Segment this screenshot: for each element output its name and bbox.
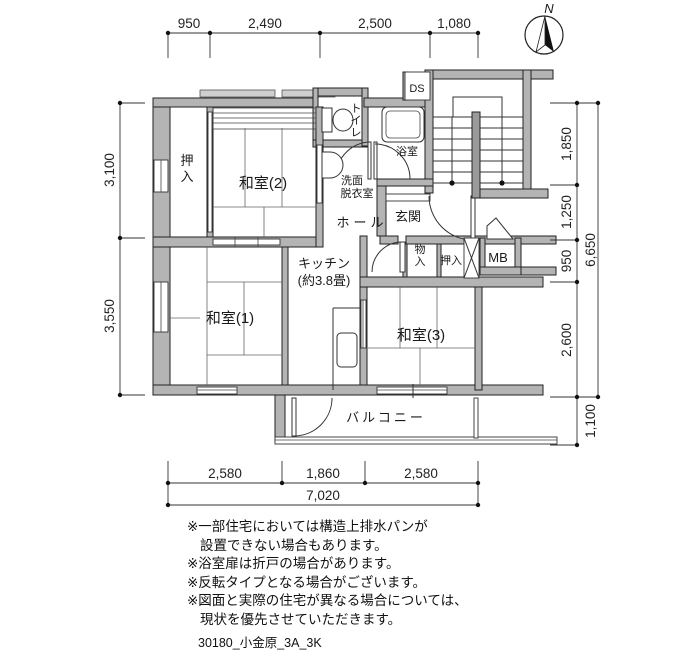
note-line-6: 現状を優先させていただきます。 bbox=[200, 612, 401, 627]
label-genkan: 玄関 bbox=[395, 209, 421, 224]
note-line-2: 設置できない場合もあります。 bbox=[200, 538, 388, 553]
kitchen-door-arc bbox=[372, 242, 402, 272]
label-hall: ホール bbox=[336, 215, 387, 230]
dim-right-total: 6,650 bbox=[583, 233, 598, 267]
floor-plan-drawing: 和室(2) 和室(1) 和室(3) キッチン (約3.8畳) 押入 トイレ 浴室… bbox=[0, 0, 700, 650]
dim-right-4: 2,600 bbox=[559, 323, 574, 357]
dim-top-2: 2,490 bbox=[248, 16, 282, 31]
dim-top-1: 950 bbox=[178, 16, 201, 31]
north-compass-icon: N bbox=[525, 1, 563, 54]
floor-plan-page: 和室(2) 和室(1) 和室(3) キッチン (約3.8畳) 押入 トイレ 浴室… bbox=[0, 0, 700, 650]
label-washitsu3: 和室(3) bbox=[397, 327, 445, 344]
room-labels: 和室(2) 和室(1) 和室(3) キッチン (約3.8畳) 押入 トイレ 浴室… bbox=[180, 83, 507, 425]
bathtub bbox=[382, 107, 424, 142]
washbasin bbox=[322, 152, 343, 178]
front-door-arc bbox=[429, 196, 473, 240]
label-kitchen: キッチン bbox=[298, 256, 350, 271]
dim-bottom-1: 2,580 bbox=[208, 466, 242, 481]
dim-left-1: 3,100 bbox=[102, 153, 117, 187]
dim-right-5: 1,100 bbox=[583, 404, 598, 438]
dim-top-3: 2,500 bbox=[358, 16, 392, 31]
kitchen-sink bbox=[337, 333, 357, 367]
dim-right-2: 1,250 bbox=[559, 195, 574, 229]
label-bath: 浴室 bbox=[396, 144, 418, 158]
label-balcony: バルコニー bbox=[346, 410, 426, 425]
note-line-4: ※反転タイプとなる場合がございます。 bbox=[187, 574, 426, 590]
label-oshiire-right: 押入 bbox=[440, 253, 462, 267]
label-ds: DS bbox=[409, 83, 424, 95]
note-line-1: ※一部住宅においては構造上排水パンが bbox=[187, 519, 428, 534]
note-line-5: ※図面と実際の住宅が異なる場合については、 bbox=[187, 593, 468, 608]
label-monoire: 物入 bbox=[415, 242, 426, 268]
dim-bottom-2: 1,860 bbox=[306, 466, 340, 481]
label-washitsu1: 和室(1) bbox=[206, 310, 254, 327]
label-mb: MB bbox=[488, 250, 508, 265]
toilet-tank bbox=[322, 108, 332, 132]
kitchen-door-leaf bbox=[400, 242, 405, 272]
dim-left-2: 3,550 bbox=[102, 299, 117, 333]
balcony-door-leaf bbox=[292, 398, 296, 436]
dim-bottom-total: 7,020 bbox=[306, 488, 340, 503]
note-line-3: ※浴室扉は折戸の場合があります。 bbox=[187, 555, 399, 571]
balcony-door-arc bbox=[294, 398, 332, 436]
plan-id-footer: 30180_小金原_3A_3K bbox=[198, 635, 322, 650]
front-door-leaf bbox=[471, 196, 475, 240]
balcony-partition bbox=[474, 398, 478, 438]
dim-right-3: 950 bbox=[559, 250, 574, 273]
mb-door bbox=[487, 218, 513, 239]
label-washroom-2: 脱衣室 bbox=[341, 186, 374, 200]
dim-right-1: 1,850 bbox=[559, 127, 574, 161]
notes-block: ※一部住宅においては構造上排水パンが 設置できない場合もあります。 ※浴室扉は折… bbox=[187, 519, 468, 627]
label-toilet: トイレ bbox=[351, 103, 362, 139]
dim-top-4: 1,080 bbox=[437, 16, 471, 31]
label-washroom-1: 洗面 bbox=[341, 174, 363, 187]
label-oshiire-left: 押入 bbox=[180, 153, 193, 184]
label-kitchen-size: (約3.8畳) bbox=[298, 273, 351, 288]
bath-door-leaf bbox=[374, 142, 377, 179]
label-washitsu2: 和室(2) bbox=[239, 175, 287, 192]
dim-bottom-3: 2,580 bbox=[404, 466, 438, 481]
compass-n-label: N bbox=[544, 1, 554, 16]
washroom-door-leaf bbox=[368, 142, 371, 179]
staircase bbox=[433, 97, 523, 198]
